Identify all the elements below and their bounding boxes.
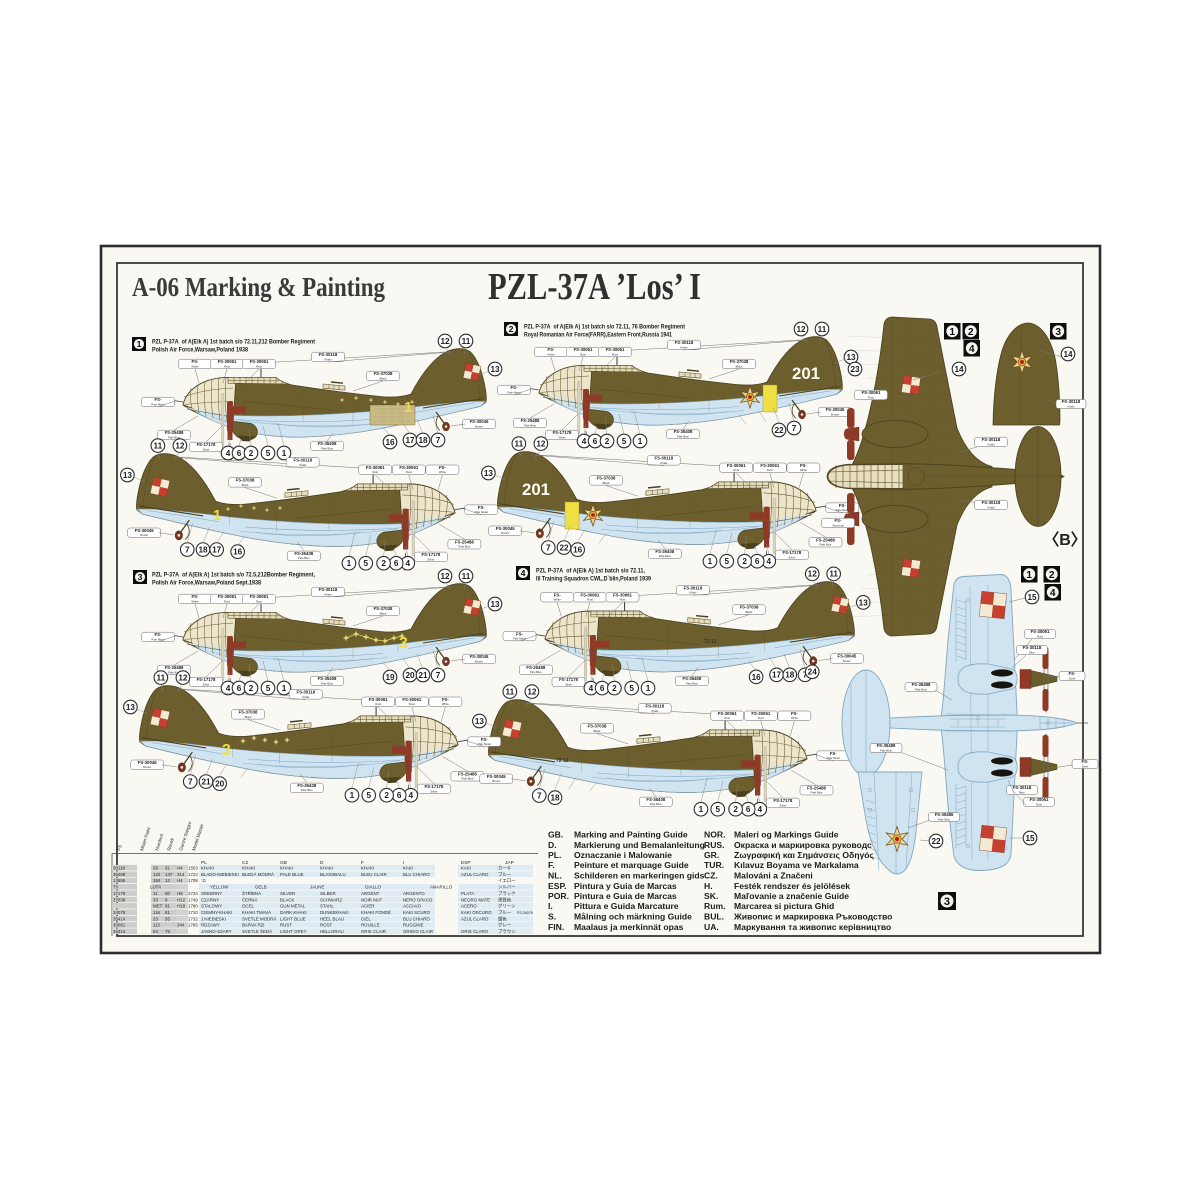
svg-text:30061: 30061	[113, 923, 126, 928]
svg-text:GB.: GB.	[548, 830, 563, 840]
svg-text:FS-34079: FS-34079	[517, 911, 533, 915]
svg-text:Rust: Rust	[767, 468, 773, 472]
svg-text:H.: H.	[704, 881, 713, 891]
svg-text:6: 6	[397, 791, 402, 800]
svg-text:Pale Blue: Pale Blue	[458, 545, 470, 549]
svg-text:314: 314	[177, 872, 185, 877]
svg-text:Brown: Brown	[140, 533, 148, 537]
svg-text:Oznaczanie i Malowanie: Oznaczanie i Malowanie	[574, 850, 672, 860]
svg-text:Silver: Silver	[559, 435, 566, 439]
svg-text:Rust: Rust	[580, 352, 586, 356]
svg-text:2: 2	[509, 324, 514, 334]
svg-text:GR.: GR.	[704, 850, 719, 860]
svg-text:5: 5	[715, 805, 720, 814]
svg-text:7: 7	[185, 545, 190, 554]
svg-text:15: 15	[1025, 834, 1035, 843]
svg-text:JAUNE: JAUNE	[310, 885, 324, 890]
svg-text:S.: S.	[548, 912, 556, 922]
svg-text:Pale Blue: Pale Blue	[811, 791, 823, 795]
svg-text:154: 154	[153, 878, 161, 883]
svg-text:Steel: Steel	[1069, 676, 1076, 680]
svg-text:13655: 13655	[113, 878, 126, 883]
svg-text:TY: TY	[113, 885, 119, 890]
svg-text:グリーン: グリーン	[498, 903, 516, 910]
svg-text:Pale Blue: Pale Blue	[298, 556, 310, 560]
svg-text:HEEL BLAU: HEEL BLAU	[320, 916, 344, 921]
svg-text:AZUL CLARO: AZUL CLARO	[461, 872, 489, 877]
svg-text:Rust: Rust	[733, 468, 739, 472]
svg-text:Målning och märkning Guide: Målning och märkning Guide	[574, 912, 692, 922]
svg-text:72 12: 72 12	[704, 639, 717, 645]
svg-text:POR.: POR.	[548, 891, 569, 901]
svg-text:Khaki: Khaki	[325, 592, 332, 596]
svg-text:Pale Metal: Pale Metal	[151, 637, 165, 641]
svg-text:72 12: 72 12	[556, 758, 569, 764]
svg-text:YELLOW: YELLOW	[210, 885, 229, 890]
svg-text:Peinture et marquage Guide: Peinture et marquage Guide	[574, 860, 689, 870]
svg-text:ROST: ROST	[320, 923, 333, 928]
svg-text:1: 1	[638, 437, 643, 446]
svg-text:Maalaus ja merkinnät opas: Maalaus ja merkinnät opas	[574, 922, 684, 932]
svg-text:HELLGRAU: HELLGRAU	[320, 929, 344, 934]
svg-text:Rust: Rust	[372, 470, 378, 474]
svg-text:H18: H18	[177, 904, 186, 909]
svg-text:Khaki: Khaki	[681, 345, 688, 349]
svg-text:Pale Blue: Pale Blue	[820, 543, 832, 547]
svg-text:14: 14	[954, 365, 964, 374]
svg-text:11: 11	[818, 325, 827, 334]
svg-text:1708: 1708	[188, 878, 198, 883]
svg-text:Pale Blue: Pale Blue	[659, 554, 671, 558]
svg-text:21: 21	[418, 671, 428, 680]
svg-text:PZL P-37A of A(Elk A) 1st bat: PZL P-37A of A(Elk A) 1st batch s/o 72.5…	[152, 572, 315, 579]
svg-text:91: 91	[165, 904, 170, 909]
svg-text:18: 18	[785, 671, 795, 680]
svg-text:KHAKI TMAVÁ: KHAKI TMAVÁ	[242, 910, 271, 915]
svg-text:CZARNY: CZARNY	[201, 897, 219, 902]
svg-text:Rust: Rust	[224, 599, 230, 603]
svg-text:7: 7	[436, 671, 441, 680]
svg-text:11: 11	[462, 337, 471, 346]
svg-text:64: 64	[153, 929, 158, 934]
svg-text:PL.: PL.	[548, 850, 561, 860]
svg-text:Rust: Rust	[758, 716, 764, 720]
svg-text:イエロー: イエロー	[498, 878, 516, 883]
svg-text:12: 12	[440, 572, 450, 581]
svg-text:Marcarea si pictura Ghid: Marcarea si pictura Ghid	[734, 901, 834, 911]
svg-text:36314: 36314	[113, 929, 126, 934]
svg-text:Maľovanie a značenie Guide: Maľovanie a značenie Guide	[734, 891, 849, 901]
svg-text:Pale Blue: Pale Blue	[321, 446, 333, 450]
svg-text:CIEMNY-KHAKI: CIEMNY-KHAKI	[201, 910, 232, 915]
svg-text:SCHWARZ: SCHWARZ	[320, 897, 342, 902]
svg-text:4: 4	[226, 449, 231, 458]
svg-text:SILBER: SILBER	[320, 891, 336, 896]
svg-text:13: 13	[475, 717, 485, 726]
svg-text:Rust: Rust	[868, 395, 874, 399]
svg-text:75: 75	[165, 929, 170, 934]
svg-text:BLEU CLAIR: BLEU CLAIR	[361, 872, 387, 877]
svg-text:17: 17	[772, 671, 782, 680]
svg-text:35414: 35414	[113, 916, 126, 921]
svg-text:Pale Blue: Pale Blue	[938, 817, 950, 821]
svg-text:SILVER: SILVER	[280, 891, 295, 896]
svg-text:Rust: Rust	[256, 364, 262, 368]
svg-text:グレー: グレー	[498, 922, 511, 929]
svg-text:ARGENT: ARGENT	[361, 891, 380, 896]
svg-text:Black: Black	[736, 364, 743, 368]
svg-text:Silver: Silver	[779, 803, 786, 807]
svg-text:ブラウン: ブラウン	[498, 928, 516, 935]
svg-text:Black: Black	[746, 610, 753, 614]
svg-text:12: 12	[165, 878, 170, 883]
svg-text:Rust: Rust	[409, 702, 415, 706]
svg-text:Pale Metal: Pale Metal	[513, 637, 527, 641]
svg-text:Blue: Blue	[1029, 650, 1035, 654]
svg-text:Маркування та живопис керівниц: Маркування та живопис керівництво	[734, 922, 891, 932]
svg-text:Steel: Steel	[1082, 764, 1089, 768]
svg-text:TUR.: TUR.	[704, 860, 724, 870]
svg-text:3: 3	[138, 572, 143, 582]
svg-text:1: 1	[347, 559, 352, 568]
svg-text:Rust: Rust	[1036, 802, 1042, 806]
svg-text:Rust: Rust	[587, 598, 593, 602]
svg-text:Pale Metal: Pale Metal	[151, 402, 165, 406]
svg-text:III Training Squadron CWL,D`bl: III Training Squadron CWL,D`blin,Poland …	[536, 576, 651, 583]
svg-text:RUS.: RUS.	[704, 840, 725, 850]
svg-text:4: 4	[969, 344, 975, 355]
svg-text:23: 23	[153, 916, 158, 921]
svg-text:1: 1	[282, 684, 287, 693]
svg-text:ROUILLE: ROUILLE	[361, 923, 380, 928]
svg-text:5: 5	[622, 437, 627, 446]
svg-text:Ζωγραφική και Σημάνσεις Οδηγός: Ζωγραφική και Σημάνσεις Οδηγός	[734, 850, 875, 860]
svg-text:KHAKI: KHAKI	[280, 866, 293, 871]
svg-text:PALE BLUE: PALE BLUE	[280, 872, 304, 877]
svg-text:Royal Romanian Air Force(FARR): Royal Romanian Air Force(FARR),Eastern F…	[524, 332, 672, 339]
svg-text:12: 12	[440, 337, 450, 346]
svg-text:White: White	[442, 702, 450, 706]
svg-text:Black: Black	[594, 729, 601, 733]
svg-text:H4: H4	[177, 878, 183, 883]
svg-text:RDZAWY: RDZAWY	[201, 923, 220, 928]
svg-text:BLEDÁ MODRÁ: BLEDÁ MODRÁ	[242, 872, 274, 877]
svg-text:2: 2	[249, 684, 254, 693]
svg-text:Silver: Silver	[203, 682, 210, 686]
svg-text:Black: Black	[380, 611, 387, 615]
svg-text:2734: 2734	[188, 891, 198, 896]
svg-text:11: 11	[829, 570, 838, 579]
svg-text:Rust: Rust	[224, 364, 230, 368]
svg-text:Окраска и маркировка руководст: Окраска и маркировка руководство	[734, 840, 886, 850]
svg-text:1749: 1749	[188, 897, 198, 902]
svg-text:12: 12	[796, 325, 806, 334]
svg-text:Brown: Brown	[143, 765, 151, 769]
svg-text:DARK KHAKI: DARK KHAKI	[280, 910, 307, 915]
svg-text:4: 4	[405, 559, 410, 568]
svg-text:SREBRNY: SREBRNY	[201, 891, 222, 896]
svg-text:6: 6	[237, 449, 242, 458]
svg-text:Pale Blue: Pale Blue	[686, 681, 698, 685]
svg-text:31: 31	[165, 866, 170, 871]
svg-text:Silver: Silver	[430, 789, 437, 793]
svg-text:BLADO-NIEBIESKI: BLADO-NIEBIESKI	[201, 872, 239, 877]
svg-text:5: 5	[724, 557, 729, 566]
svg-text:Pittura e Guida Marcature: Pittura e Guida Marcature	[574, 901, 679, 911]
svg-text:ŠTŘÍBNÁ: ŠTŘÍBNÁ	[242, 891, 261, 896]
svg-text:3: 3	[944, 896, 950, 908]
svg-text:Silver: Silver	[203, 447, 210, 451]
svg-text:BLACK: BLACK	[280, 897, 294, 902]
svg-text:Rust: Rust	[620, 598, 626, 602]
svg-text:I.: I.	[548, 901, 553, 911]
svg-text:RUGGINE: RUGGINE	[403, 923, 424, 928]
svg-text:Khaki: Khaki	[988, 442, 995, 446]
svg-text:Pale Blue: Pale Blue	[524, 423, 536, 427]
svg-text:55: 55	[165, 916, 170, 921]
svg-text:344: 344	[177, 923, 185, 928]
svg-text:18: 18	[418, 436, 428, 445]
svg-text:SVETLE MODRÁ: SVETLE MODRÁ	[242, 916, 276, 921]
svg-text:Rust: Rust	[375, 702, 381, 706]
svg-text:Black: Black	[603, 481, 610, 485]
svg-text:KAKI SCURO: KAKI SCURO	[403, 910, 431, 915]
svg-text:5: 5	[629, 684, 634, 693]
svg-text:Blue: Blue	[1019, 790, 1025, 794]
svg-text:STALOWY: STALOWY	[201, 904, 222, 909]
svg-text:7: 7	[537, 791, 542, 800]
svg-text:SK.: SK.	[704, 891, 718, 901]
svg-text:Silver: Silver	[565, 682, 572, 686]
svg-text:H12: H12	[177, 897, 186, 902]
svg-text:KHAKI FONDÉ: KHAKI FONDÉ	[361, 910, 391, 915]
svg-text:1: 1	[646, 684, 651, 693]
svg-text:147: 147	[165, 872, 173, 877]
svg-text:Black: Black	[242, 483, 249, 487]
svg-text:Pale Blue: Pale Blue	[301, 788, 313, 792]
svg-text:4: 4	[408, 791, 413, 800]
svg-text:Brown: Brown	[831, 412, 839, 416]
svg-text:SVETLE ŠEDÁ: SVETLE ŠEDÁ	[242, 929, 272, 934]
svg-text:ブルー: ブルー	[498, 909, 511, 915]
svg-text:BLASSBALU: BLASSBALU	[320, 872, 346, 877]
svg-text:錆色: 錆色	[498, 915, 507, 922]
svg-text:Black: Black	[245, 715, 252, 719]
svg-text:Rust: Rust	[724, 716, 730, 720]
svg-text:11: 11	[506, 688, 515, 697]
svg-text:6: 6	[394, 559, 399, 568]
svg-text:NEGRO MATE: NEGRO MATE	[461, 897, 490, 902]
svg-text:NL.: NL.	[548, 871, 562, 881]
svg-text:H8: H8	[177, 891, 183, 896]
svg-text:30118: 30118	[113, 866, 125, 871]
svg-text:A-06 Marking & Painting: A-06 Marking & Painting	[132, 272, 385, 302]
svg-text:7: 7	[546, 543, 551, 552]
svg-text:黒鉄色: 黒鉄色	[498, 896, 512, 903]
svg-text:KHAKI: KHAKI	[242, 866, 255, 871]
svg-text:NOR.: NOR.	[704, 830, 725, 840]
svg-text:GRIS CLARO: GRIS CLARO	[461, 929, 489, 934]
svg-text:Sectional: Sectional	[832, 523, 844, 527]
svg-text:ESP.: ESP.	[548, 881, 566, 891]
svg-text:20: 20	[405, 671, 415, 680]
svg-text:Silver: Silver	[427, 557, 434, 561]
svg-text:Kılavuz Boyama ve Markalama: Kılavuz Boyama ve Markalama	[734, 860, 859, 870]
svg-text:Pale Metal: Pale Metal	[507, 390, 521, 394]
svg-text:6: 6	[593, 437, 598, 446]
svg-text:White: White	[191, 364, 199, 368]
svg-text:White: White	[800, 468, 808, 472]
svg-text:PZL P-37A of A(Elk A) 1st bat: PZL P-37A of A(Elk A) 1st batch s/o 72.1…	[536, 568, 645, 575]
svg-text:4: 4	[766, 557, 771, 566]
svg-text:KHAKI: KHAKI	[201, 866, 214, 871]
svg-text:Pale Blue: Pale Blue	[915, 687, 927, 691]
svg-text:ARGENTO: ARGENTO	[403, 891, 425, 896]
svg-text:BLU CHIARO: BLU CHIARO	[403, 916, 430, 921]
svg-text:5: 5	[363, 559, 368, 568]
svg-text:16: 16	[752, 673, 762, 682]
svg-text:20: 20	[215, 780, 225, 789]
svg-text:2: 2	[742, 557, 747, 566]
svg-text:2: 2	[384, 791, 389, 800]
svg-text:2: 2	[612, 684, 617, 693]
svg-text:15: 15	[1027, 593, 1037, 602]
svg-text:11: 11	[515, 440, 524, 449]
svg-text:22: 22	[931, 837, 941, 846]
svg-text:ACCIAIO: ACCIAIO	[403, 904, 422, 909]
svg-text:Pintura y Guia de Marcas: Pintura y Guia de Marcas	[574, 881, 677, 891]
svg-text:12: 12	[808, 570, 818, 579]
svg-text:Silver: Silver	[788, 555, 795, 559]
svg-text:`D: `D	[201, 878, 206, 883]
svg-text:Brown: Brown	[501, 531, 509, 535]
svg-text:201: 201	[792, 364, 820, 383]
svg-text:23: 23	[850, 365, 860, 374]
svg-text:4: 4	[589, 684, 594, 693]
svg-text:H4: H4	[177, 866, 183, 871]
svg-text:4: 4	[582, 437, 587, 446]
svg-text:1503: 1503	[188, 866, 198, 871]
svg-text:7: 7	[188, 777, 193, 786]
svg-text:Khaki: Khaki	[325, 357, 332, 361]
svg-text:KHAKI: KHAKI	[320, 866, 333, 871]
svg-text:STAHL: STAHL	[320, 904, 334, 909]
svg-text:D.: D.	[548, 840, 557, 850]
svg-text:13: 13	[490, 600, 500, 609]
svg-text:19: 19	[385, 673, 395, 682]
svg-text:GELB: GELB	[255, 885, 267, 890]
svg-text:5: 5	[366, 791, 371, 800]
svg-text:BARVA RZI: BARVA RZI	[242, 923, 265, 928]
svg-text:34079: 34079	[113, 910, 126, 915]
svg-text:2: 2	[1049, 570, 1055, 581]
svg-text:Pale Blue: Pale Blue	[321, 681, 333, 685]
svg-text:Marking and Painting Guide: Marking and Painting Guide	[574, 830, 688, 840]
svg-text:2: 2	[605, 437, 610, 446]
svg-text:Pale Blue: Pale Blue	[677, 434, 689, 438]
svg-text:1: 1	[949, 327, 955, 338]
svg-text:2: 2	[968, 327, 974, 338]
svg-text:22: 22	[774, 426, 784, 435]
svg-text:12: 12	[178, 674, 188, 683]
svg-text:Khaki: Khaki	[689, 591, 696, 595]
svg-text:PZL P-37A of A(Elk A) 1st bat: PZL P-37A of A(Elk A) 1st batch s/o 72.1…	[524, 324, 686, 331]
svg-text:GUN METAL: GUN METAL	[280, 904, 306, 909]
svg-text:CZ.: CZ.	[704, 871, 718, 881]
svg-text:Khaki: Khaki	[302, 695, 309, 699]
svg-text:17178: 17178	[113, 891, 126, 896]
svg-text:1722: 1722	[188, 872, 198, 877]
svg-text:6: 6	[237, 684, 242, 693]
svg-text:113: 113	[153, 923, 161, 928]
svg-text:33: 33	[153, 897, 158, 902]
svg-text:KAKI: KAKI	[403, 866, 413, 871]
svg-text:Rust: Rust	[256, 599, 262, 603]
svg-text:KAKI: KAKI	[461, 866, 471, 871]
svg-text:BLU CHIARO: BLU CHIARO	[403, 872, 430, 877]
svg-text:Polish Air Force,Warsaw,Poland: Polish Air Force,Warsaw,Poland Sept.1938	[152, 580, 261, 587]
svg-text:MET: MET	[153, 904, 163, 909]
svg-text:Rust: Rust	[1037, 634, 1043, 638]
svg-text:PZL-37A ’Los’ I: PZL-37A ’Los’ I	[488, 266, 701, 308]
svg-text:Rust: Rust	[612, 352, 618, 356]
svg-text:Rum.: Rum.	[704, 901, 725, 911]
svg-text:7: 7	[792, 424, 797, 433]
svg-text:White: White	[191, 599, 199, 603]
svg-text:LIGHT GREY: LIGHT GREY	[280, 929, 307, 934]
svg-text:61: 61	[165, 910, 170, 915]
svg-text:35488: 35488	[113, 872, 126, 877]
svg-text:12: 12	[527, 688, 537, 697]
svg-text:17: 17	[212, 545, 222, 554]
svg-text:Pale Blue: Pale Blue	[650, 802, 662, 806]
svg-text:11: 11	[157, 674, 166, 683]
svg-text:KHAKI: KHAKI	[361, 866, 374, 871]
svg-text:5: 5	[266, 449, 271, 458]
svg-text:22: 22	[559, 543, 569, 552]
svg-text:Khaki: Khaki	[1068, 404, 1075, 408]
svg-text:13: 13	[490, 365, 500, 374]
svg-text:GRIS CLAIR: GRIS CLAIR	[361, 929, 386, 934]
svg-text:Khaki: Khaki	[988, 505, 995, 509]
svg-text:13: 13	[846, 353, 856, 362]
svg-text:37038: 37038	[113, 897, 126, 902]
svg-text:PZL P-37A of A(Elk A) 1st bat: PZL P-37A of A(Elk A) 1st batch s/o 72.1…	[152, 339, 316, 346]
svg-text:GIALLO: GIALLO	[365, 885, 381, 890]
svg-text:21: 21	[201, 777, 211, 786]
svg-text:4: 4	[1050, 588, 1056, 599]
svg-text:1710: 1710	[188, 910, 198, 915]
svg-text:13: 13	[126, 703, 136, 712]
svg-text:1: 1	[350, 791, 355, 800]
svg-text:Khaki: Khaki	[299, 463, 306, 467]
svg-text:Brown: Brown	[843, 659, 851, 663]
svg-text:24: 24	[808, 668, 818, 677]
svg-text:18: 18	[550, 794, 560, 803]
svg-text:Malováni a Značeni: Malováni a Značeni	[734, 871, 813, 881]
svg-text:PLATA: PLATA	[461, 891, 474, 896]
svg-text:White: White	[439, 470, 447, 474]
svg-text:116: 116	[153, 910, 161, 915]
svg-text:1: 1	[699, 805, 704, 814]
svg-text:〈B〉: 〈B〉	[1043, 531, 1087, 549]
svg-text:ブラック: ブラック	[498, 890, 516, 897]
svg-text:16: 16	[233, 548, 243, 557]
svg-text:6: 6	[600, 684, 605, 693]
svg-text:ČERNÁ: ČERNÁ	[242, 897, 257, 902]
svg-text:6: 6	[746, 805, 751, 814]
svg-text:18: 18	[198, 545, 208, 554]
